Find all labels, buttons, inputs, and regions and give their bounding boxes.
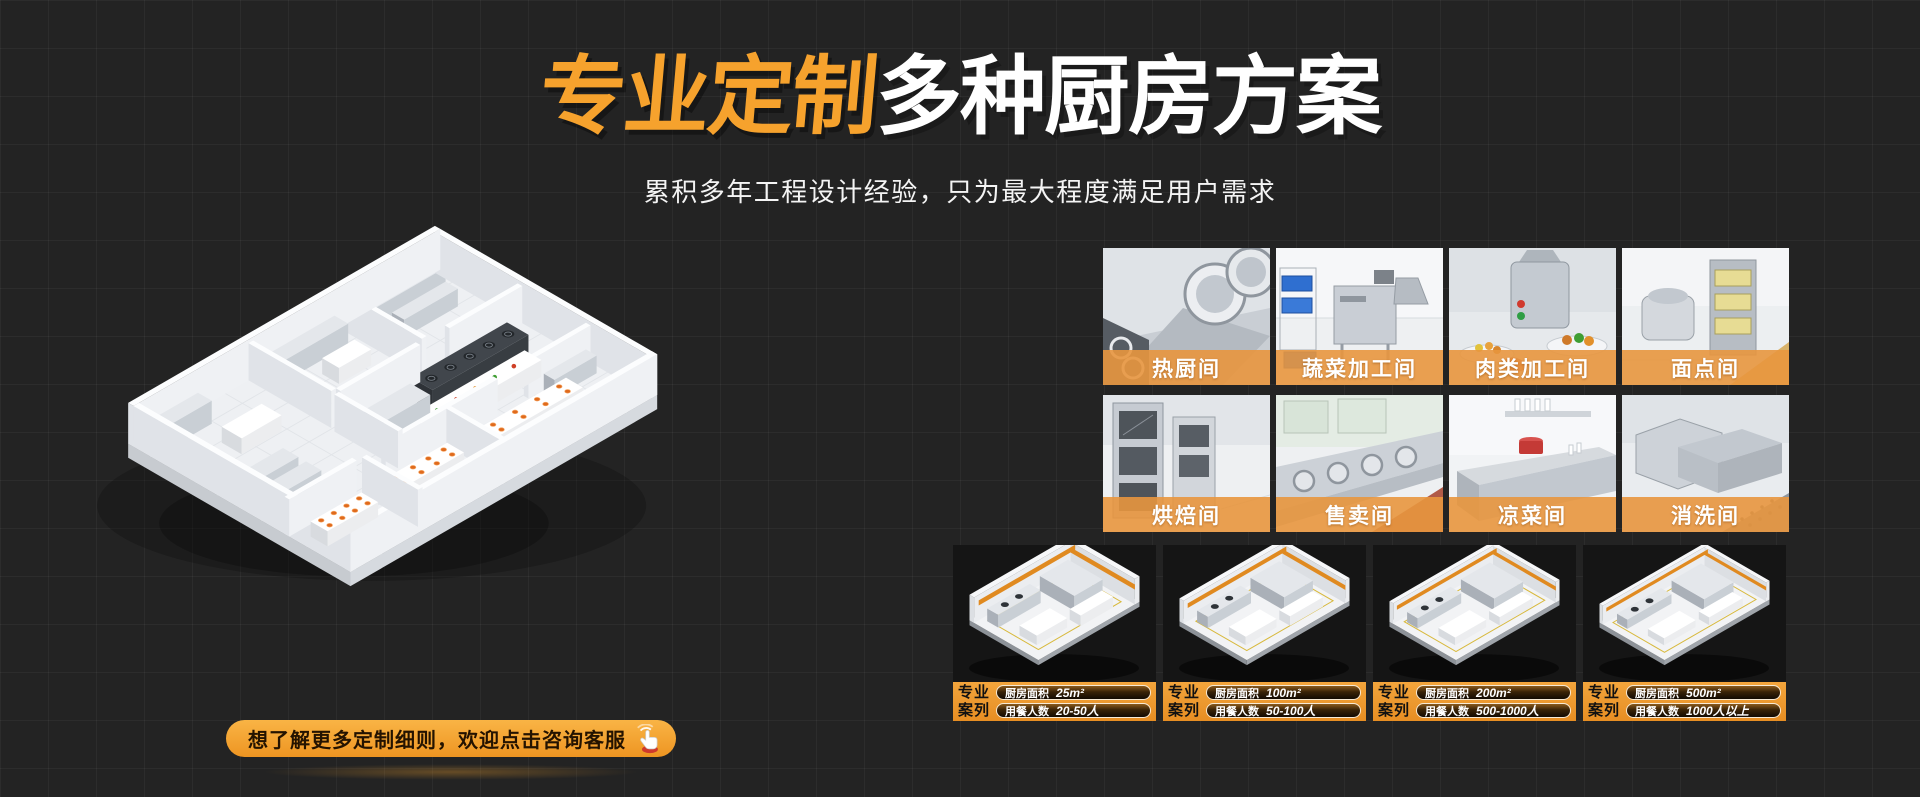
- room-gallery: 热厨间 蔬菜加工间: [1103, 248, 1795, 532]
- kitchen-area-pill: 厨房面积 25m²: [996, 685, 1151, 700]
- diner-count-pill: 用餐人数 1000人以上: [1626, 703, 1781, 718]
- room-tile-label: 凉菜间: [1449, 497, 1616, 532]
- case-tag: 专业 案列: [958, 684, 990, 719]
- case-card-200m2[interactable]: 专业 案列 厨房面积 200m² 用餐人数 500-1000人: [1373, 545, 1576, 721]
- room-tile-baking[interactable]: 烘焙间: [1103, 395, 1270, 532]
- page-title: 专业定制多种厨房方案: [0, 48, 1920, 147]
- diner-count-pill: 用餐人数 20-50人: [996, 703, 1151, 718]
- room-tile-label: 售卖间: [1276, 497, 1443, 532]
- consult-service-button[interactable]: 想了解更多定制细则，欢迎点击咨询客服: [226, 720, 676, 757]
- room-tile-label: 面点间: [1622, 350, 1789, 385]
- case-gallery: 专业 案列 厨房面积 25m² 用餐人数 20-50人: [953, 545, 1786, 721]
- case-illustration: [1583, 545, 1786, 682]
- case-tag: 专业 案列: [1168, 684, 1200, 719]
- case-card-100m2[interactable]: 专业 案列 厨房面积 100m² 用餐人数 50-100人: [1163, 545, 1366, 721]
- case-label-bar: 专业 案列 厨房面积 200m² 用餐人数 500-1000人: [1373, 682, 1576, 721]
- click-hand-icon: [634, 724, 664, 754]
- floorplan-svg: [88, 178, 673, 603]
- kitchen-solutions-banner: 专业定制多种厨房方案 累积多年工程设计经验，只为最大程度满足用户需求 想了解更多…: [0, 0, 1920, 797]
- room-tile-label: 烘焙间: [1103, 497, 1270, 532]
- case-card-25m2[interactable]: 专业 案列 厨房面积 25m² 用餐人数 20-50人: [953, 545, 1156, 721]
- room-tile-label: 肉类加工间: [1449, 350, 1616, 385]
- title-rest: 多种厨房方案: [876, 48, 1380, 147]
- case-tag: 专业 案列: [1588, 684, 1620, 719]
- room-tile-meat-processing[interactable]: 肉类加工间: [1449, 248, 1616, 385]
- case-illustration: [1163, 545, 1366, 682]
- diner-count-pill: 用餐人数 500-1000人: [1416, 703, 1571, 718]
- kitchen-area-pill: 厨房面积 200m²: [1416, 685, 1571, 700]
- case-illustration: [953, 545, 1156, 682]
- room-tile-vegetable-processing[interactable]: 蔬菜加工间: [1276, 248, 1443, 385]
- room-tile-label: 消洗间: [1622, 497, 1789, 532]
- kitchen-floorplan-illustration: [88, 178, 673, 603]
- kitchen-area-pill: 厨房面积 500m²: [1626, 685, 1781, 700]
- case-label-bar: 专业 案列 厨房面积 500m² 用餐人数 1000人以上: [1583, 682, 1786, 721]
- case-label-bar: 专业 案列 厨房面积 25m² 用餐人数 20-50人: [953, 682, 1156, 721]
- room-tile-sales[interactable]: 售卖间: [1276, 395, 1443, 532]
- room-tile-washing[interactable]: 消洗间: [1622, 395, 1789, 532]
- room-tile-label: 热厨间: [1103, 350, 1270, 385]
- case-illustration: [1373, 545, 1576, 682]
- room-tile-cold-dishes[interactable]: 凉菜间: [1449, 395, 1616, 532]
- diner-count-pill: 用餐人数 50-100人: [1206, 703, 1361, 718]
- room-tile-label: 蔬菜加工间: [1276, 350, 1443, 385]
- room-tile-hot-kitchen[interactable]: 热厨间: [1103, 248, 1270, 385]
- title-accent: 专业定制: [536, 48, 881, 147]
- case-card-500m2[interactable]: 专业 案列 厨房面积 500m² 用餐人数 1000人以上: [1583, 545, 1786, 721]
- room-tile-pastry[interactable]: 面点间: [1622, 248, 1789, 385]
- kitchen-area-pill: 厨房面积 100m²: [1206, 685, 1361, 700]
- case-label-bar: 专业 案列 厨房面积 100m² 用餐人数 50-100人: [1163, 682, 1366, 721]
- consult-button-label: 想了解更多定制细则，欢迎点击咨询客服: [248, 724, 626, 753]
- case-tag: 专业 案列: [1378, 684, 1410, 719]
